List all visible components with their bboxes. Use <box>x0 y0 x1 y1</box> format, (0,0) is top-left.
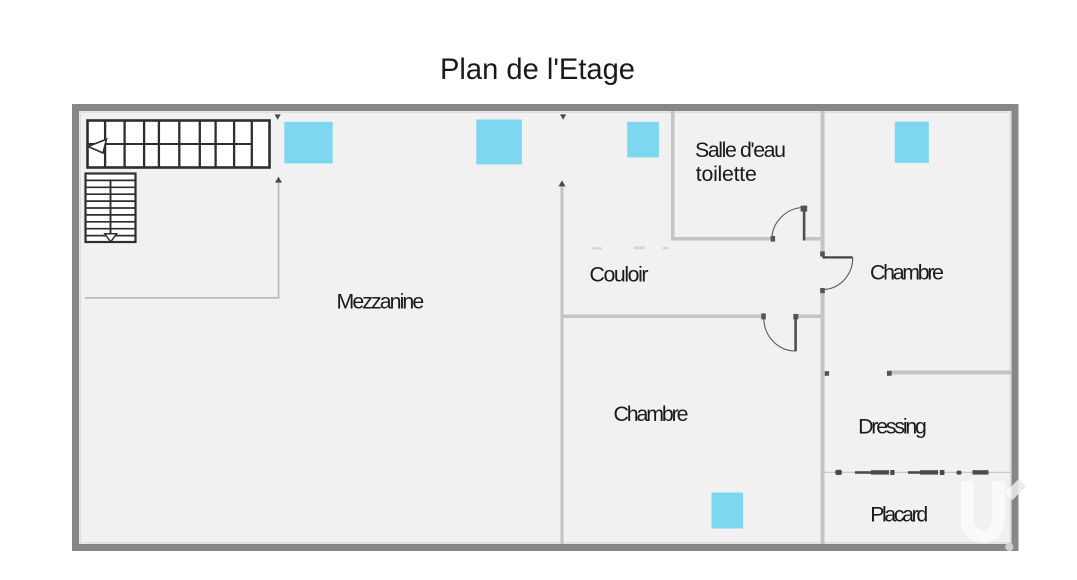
svg-text:Chambre: Chambre <box>870 261 944 285</box>
svg-text:Chambre: Chambre <box>614 402 689 426</box>
svg-text:toilette: toilette <box>696 162 757 186</box>
svg-text:Couloir: Couloir <box>590 263 649 287</box>
svg-text:Mezzanine: Mezzanine <box>337 289 425 313</box>
svg-text:Placard: Placard <box>870 503 928 527</box>
svg-text:Salle d'eau: Salle d'eau <box>695 138 786 162</box>
svg-text:Dressing: Dressing <box>858 415 927 439</box>
svg-text:Plan de l'Etage: Plan de l'Etage <box>440 53 635 86</box>
